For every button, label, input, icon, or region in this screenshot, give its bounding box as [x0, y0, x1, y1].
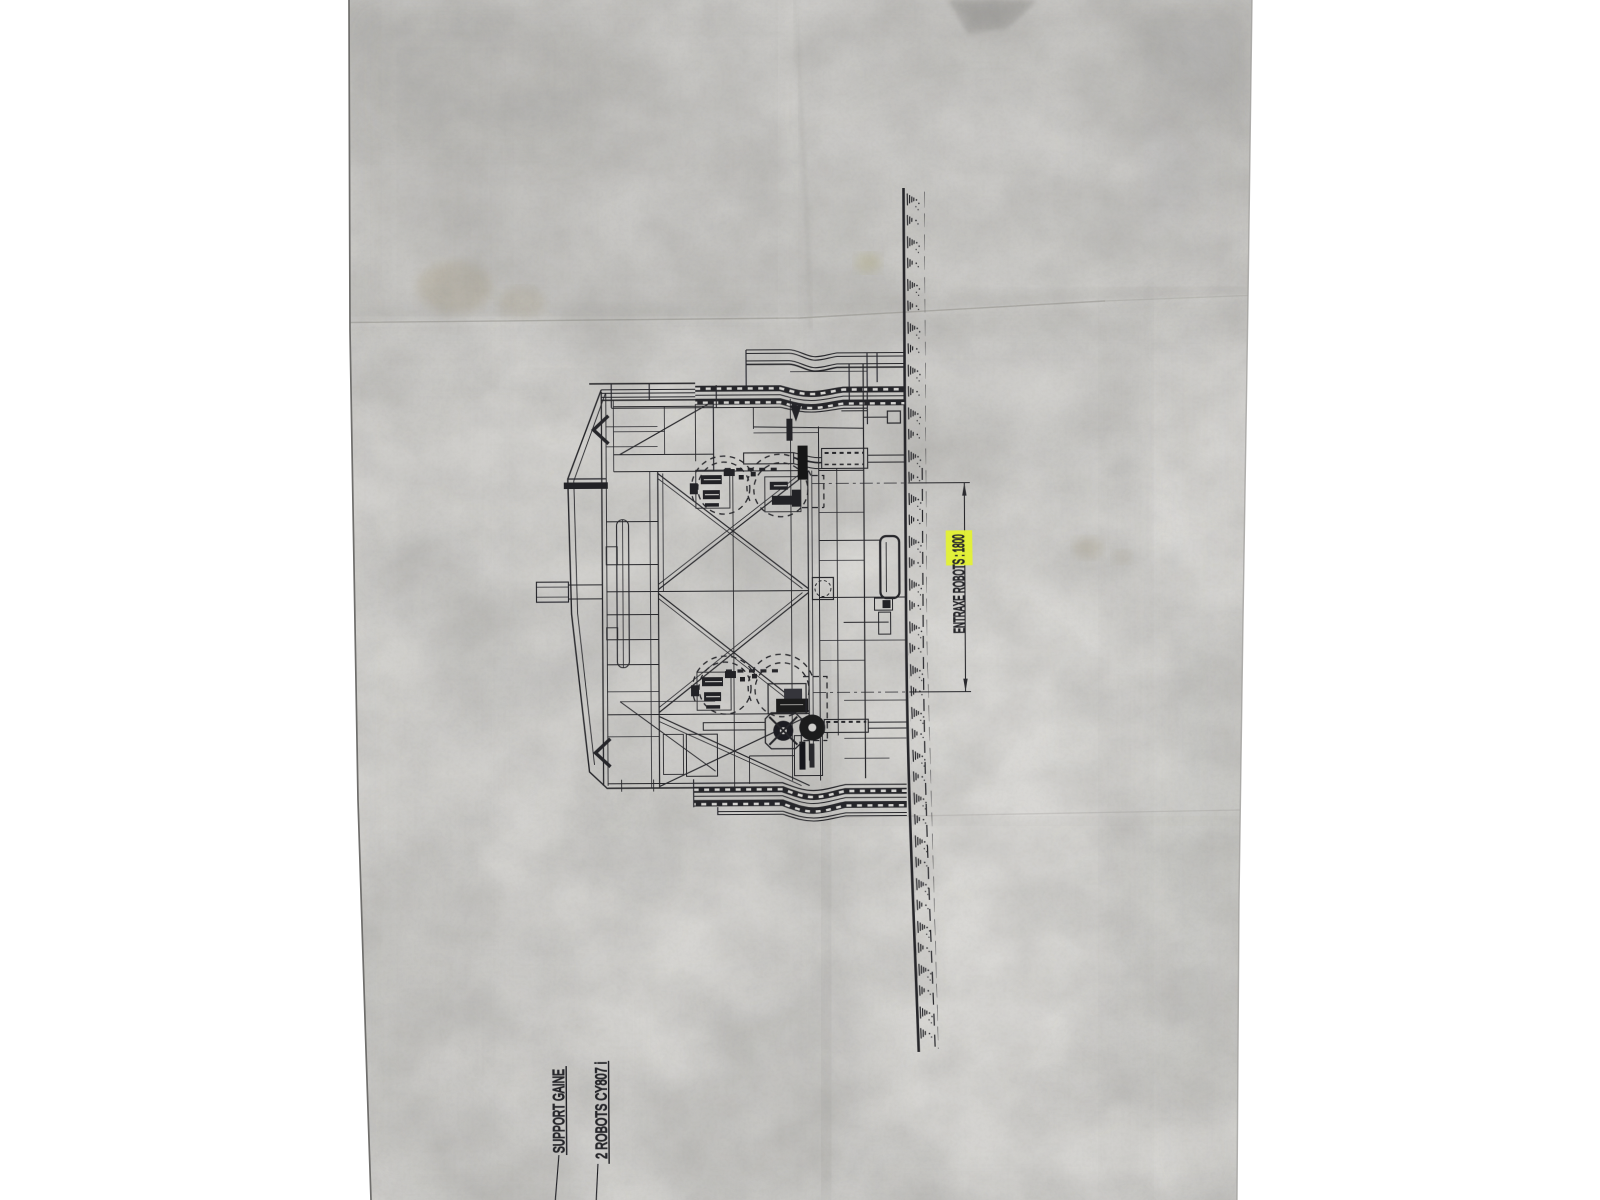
- svg-text:ENTRAXE ROBOTS : 1800: ENTRAXE ROBOTS : 1800: [951, 534, 969, 633]
